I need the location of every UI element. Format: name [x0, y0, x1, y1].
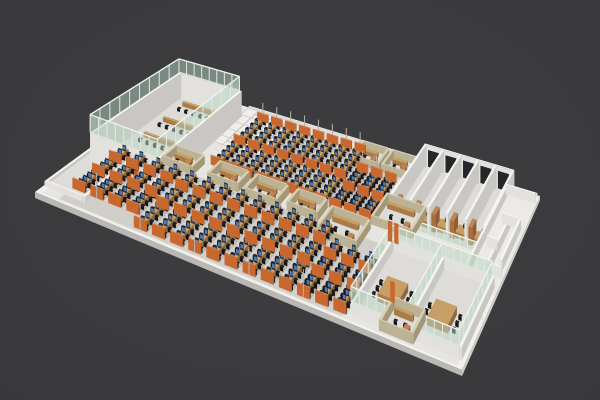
render-viewport	[0, 0, 600, 400]
office-floor-3d-model	[0, 0, 600, 400]
